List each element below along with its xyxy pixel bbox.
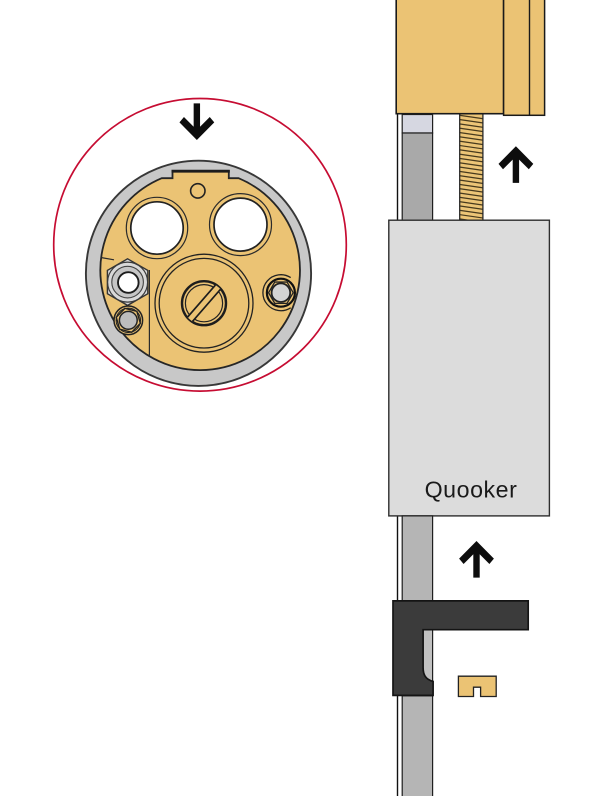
svg-text:Quooker: Quooker: [425, 476, 518, 502]
